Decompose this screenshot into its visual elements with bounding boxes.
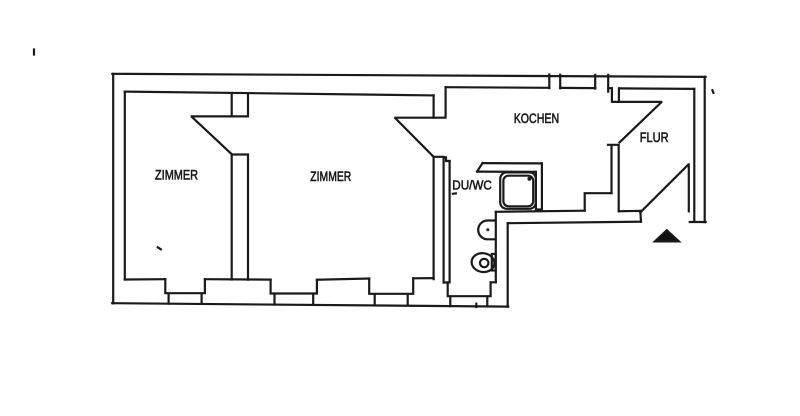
svg-text:DU/WC: DU/WC: [452, 178, 492, 193]
svg-text:ZIMMER: ZIMMER: [155, 168, 198, 183]
svg-text:KOCHEN: KOCHEN: [514, 111, 560, 126]
svg-text:FLUR: FLUR: [640, 130, 669, 145]
svg-text:ZIMMER: ZIMMER: [310, 169, 351, 184]
